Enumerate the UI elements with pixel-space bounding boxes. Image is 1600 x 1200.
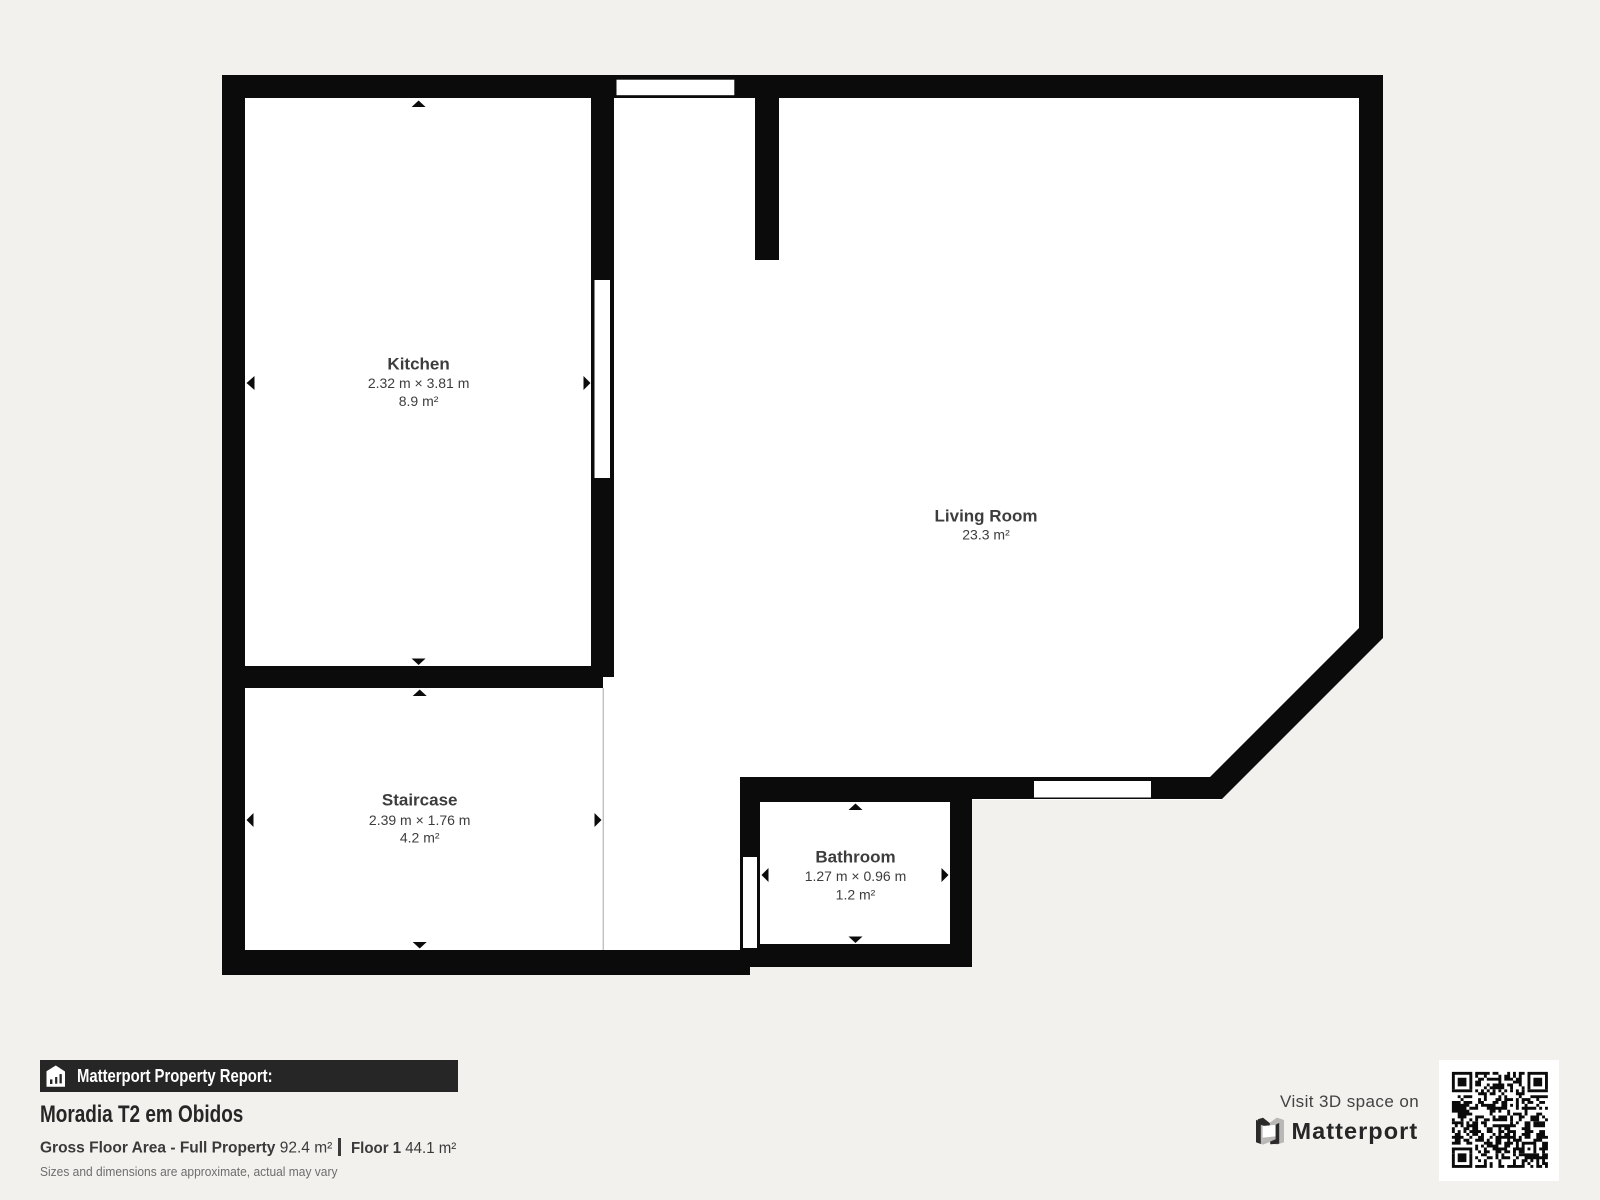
svg-text:Bathroom: Bathroom [815,848,895,867]
svg-text:1.27 m × 0.96 m: 1.27 m × 0.96 m [805,868,907,884]
svg-text:2.39 m × 1.76 m: 2.39 m × 1.76 m [369,812,471,828]
svg-text:8.9 m²: 8.9 m² [399,393,439,409]
svg-text:23.3 m²: 23.3 m² [962,527,1010,543]
svg-text:4.2 m²: 4.2 m² [400,830,440,846]
svg-text:1.2 m²: 1.2 m² [836,887,876,903]
svg-text:2.32 m × 3.81 m: 2.32 m × 3.81 m [368,375,470,391]
svg-text:Staircase: Staircase [382,791,458,810]
svg-text:Kitchen: Kitchen [387,355,449,374]
svg-text:Living Room: Living Room [935,506,1038,525]
